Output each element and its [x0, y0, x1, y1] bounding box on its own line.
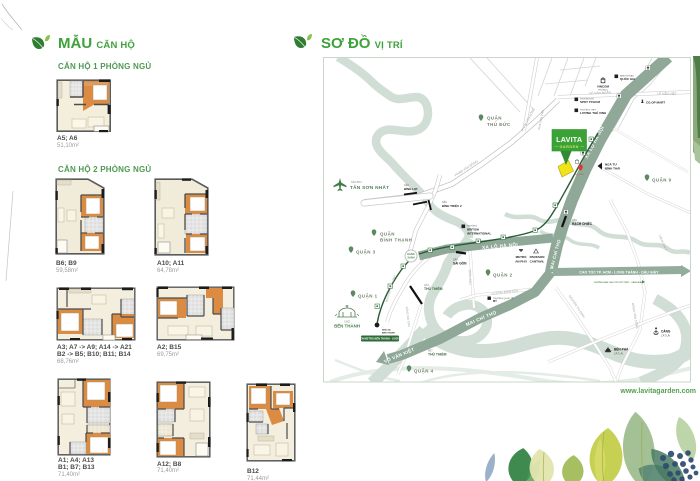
svg-text:LAVITA: LAVITA	[556, 135, 582, 144]
svg-text:TÂN SƠN NHẤT: TÂN SƠN NHẤT	[350, 184, 389, 190]
svg-text:CAO TỐC TP. HCM - LONG THÀNH -: CAO TỐC TP. HCM - LONG THÀNH - DẦU GIÂY	[579, 269, 659, 274]
svg-text:QUẬN 3: QUẬN 3	[356, 250, 376, 255]
svg-text:SPKT TP.HCM: SPKT TP.HCM	[580, 100, 600, 104]
svg-text:CÁT LÁI: CÁT LÁI	[614, 353, 623, 356]
svg-text:QUỐC GIA: QUỐC GIA	[620, 76, 636, 81]
svg-text:AN PHÚ: AN PHÚ	[515, 258, 527, 263]
svg-text:TRẦN NÃO: TRẦN NÃO	[468, 269, 474, 285]
svg-text:BÌNH LỢI: BÌNH LỢI	[404, 186, 418, 191]
svg-text:BẾN THÀNH: BẾN THÀNH	[334, 324, 360, 329]
svg-text:QUẬN 1: QUẬN 1	[358, 294, 378, 299]
svg-text:QUẬN 9: QUẬN 9	[652, 178, 672, 183]
svg-text:INTERNATIONAL: INTERNATIONAL	[467, 232, 491, 236]
svg-text:CANTAVIL: CANTAVIL	[530, 259, 545, 263]
svg-text:THỦ ĐỨC: THỦ ĐỨC	[598, 89, 609, 92]
svg-text:QUẬN 4: QUẬN 4	[414, 369, 434, 374]
svg-text:QUẬN 2: QUẬN 2	[493, 273, 513, 278]
svg-text:METRO: METRO	[516, 255, 527, 259]
svg-text:RẠCH CHIẾC: RẠCH CHIẾC	[572, 221, 593, 226]
svg-text:THỦ THIÊM: THỦ THIÊM	[428, 352, 447, 357]
svg-text:CẢNG: CẢNG	[661, 329, 671, 334]
svg-text:SÀI GÒN: SÀI GÒN	[453, 261, 467, 266]
svg-text:THỦ ĐỨC: THỦ ĐỨC	[487, 122, 511, 127]
svg-text:BẾN PHÀ: BẾN PHÀ	[614, 347, 629, 352]
svg-text:GARDEN: GARDEN	[559, 145, 578, 149]
svg-text:NHÀ GA: NHÀ GA	[382, 329, 391, 332]
svg-text:ĐƯỜNG DẪN CAO TỐC MỸ THỦY - VÀ: ĐƯỜNG DẪN CAO TỐC MỸ THỦY - VÀNH ĐAI 2	[594, 281, 644, 284]
svg-text:BÌNH TRIỆU 2: BÌNH TRIỆU 2	[442, 203, 462, 208]
svg-text:CÁT LÁI: CÁT LÁI	[661, 335, 670, 338]
svg-text:QUẬN: QUẬN	[487, 116, 502, 121]
svg-text:VINCOM: VINCOM	[597, 85, 610, 89]
svg-text:BÌNH THẠNH: BÌNH THẠNH	[380, 238, 412, 243]
svg-text:BÌNH THÁI: BÌNH THÁI	[605, 166, 620, 171]
svg-text:THỦ THIÊM: THỦ THIÊM	[424, 286, 443, 291]
svg-text:XANH: XANH	[407, 255, 414, 259]
svg-text:BẾN THÀNH: BẾN THÀNH	[382, 332, 395, 335]
svg-text:LƯƠNG THẾ VINH: LƯƠNG THẾ VINH	[580, 110, 606, 115]
svg-text:LÊ VĂN VIỆT: LÊ VĂN VIỆT	[657, 91, 676, 96]
svg-text:PARKSON: PARKSON	[530, 255, 545, 259]
svg-text:QUẬN: QUẬN	[380, 232, 395, 237]
svg-text:CO.OP MART: CO.OP MART	[646, 101, 665, 105]
svg-text:NHÀ MẪU: NHÀ MẪU	[574, 173, 585, 176]
